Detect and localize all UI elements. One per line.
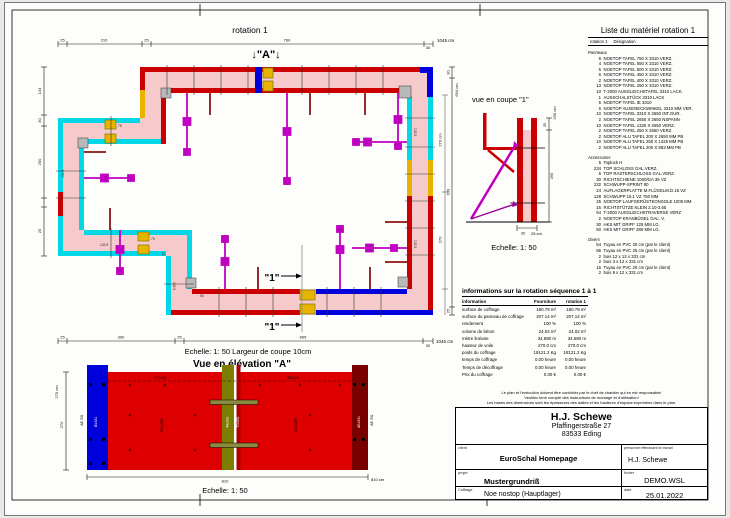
info-row-label: hauteur de voile (462, 342, 524, 349)
svg-text:270 cm: 270 cm (54, 385, 59, 399)
svg-text:12: 12 (161, 252, 165, 256)
rotation-info-table: informations sur la rotation séquence 1 … (462, 288, 588, 378)
svg-text:25: 25 (60, 335, 65, 340)
info-row-value: 100 % (524, 320, 556, 327)
info-table-row: poids du coffrage18121.2 Kg18121.2 Kg (462, 349, 588, 356)
info-col-information: information (462, 299, 524, 304)
svg-text:331x265: 331x265 (294, 418, 298, 431)
svg-text:30: 30 (521, 232, 525, 236)
disclaimer-line: Les bases des dimensions sont les épaiss… (455, 400, 708, 405)
material-groups: Panneaux6NOETOP TAFEL 750 X 3310 VERZ.4N… (588, 50, 708, 276)
info-row-value: 0.00 € (556, 371, 586, 378)
svg-text:810 cm: 810 cm (371, 477, 385, 482)
info-row-label: Temps de décoffrage (462, 364, 524, 371)
client-value: EuroSchal Homepage (456, 454, 621, 463)
info-row-label: poids du coffrage (462, 349, 524, 356)
info-table-row: surface du panneau de coffrage207.14 m²2… (462, 313, 588, 320)
disclaimer-text: Le plan et l'exécution doivent être cont… (455, 390, 708, 405)
svg-text:132.5: 132.5 (61, 170, 65, 178)
file-label: fichier (624, 471, 634, 475)
svg-text:70x331: 70x331 (236, 416, 240, 427)
info-table-row: Prix du coffrage0.00 €0.00 € (462, 371, 588, 378)
material-item-name: bois 9 x 12 x 331 cm (601, 270, 643, 276)
svg-text:25: 25 (60, 38, 65, 43)
company-address-street: Pfaffingerstraße 27 (456, 423, 707, 431)
section-1-marker: "1" (264, 273, 279, 284)
svg-text:200: 200 (37, 158, 42, 165)
material-item: 50HKS MIT GRIFF 280 MM LG. (588, 227, 708, 233)
plan-width-total: 1045 cm (437, 38, 455, 43)
svg-text:331x25: 331x25 (154, 376, 166, 380)
info-row-value: 0.00 heure (556, 364, 586, 371)
info-table-row: volume de béton24.02 m³24.02 m³ (462, 328, 588, 335)
info-row-label: Prix du coffrage (462, 371, 524, 378)
wall-band (58, 67, 433, 315)
info-row-label: surface du panneau de coffrage (462, 313, 524, 320)
info-row-label: temps de coffrage (462, 356, 524, 363)
info-row-label: volume de béton (462, 328, 524, 335)
info-row-value: 0.00 € (524, 371, 556, 378)
svg-text:331x25: 331x25 (287, 376, 299, 380)
info-row-value: 270.0 cm (524, 342, 556, 349)
title-block: H.J. Schewe Pfaffingerstraße 27 83533 Ed… (455, 407, 708, 500)
svg-text:132.5: 132.5 (413, 240, 417, 248)
svg-text:30: 30 (426, 45, 431, 50)
material-item-qty: 50 (588, 227, 601, 233)
svg-text:75: 75 (118, 124, 122, 128)
section-title: vue en coupe "1" (472, 95, 529, 104)
svg-text:50: 50 (200, 294, 204, 298)
svg-text:IEx331: IEx331 (94, 417, 98, 428)
company-header: H.J. Schewe Pfaffingerstraße 27 83533 Ed… (456, 408, 707, 445)
company-name: H.J. Schewe (456, 408, 707, 423)
info-table-title: informations sur la rotation séquence 1 … (462, 288, 588, 297)
svg-text:331x265: 331x265 (160, 418, 164, 431)
info-row-value: 0.00 heure (524, 356, 556, 363)
material-item-qty: 2 (588, 270, 601, 276)
project-label: projet (458, 471, 468, 475)
info-row-value: 180.79 m² (556, 306, 586, 313)
info-row-value: 18121.2 Kg (556, 349, 586, 356)
material-list: Liste du matériel rotation 1 rotation 1 … (588, 26, 708, 276)
svg-text:270 cm: 270 cm (438, 133, 443, 147)
svg-text:75: 75 (151, 237, 155, 241)
info-row-value: 0.00 heure (556, 356, 586, 363)
svg-text:AE 331: AE 331 (80, 414, 84, 426)
svg-text:30: 30 (426, 343, 431, 348)
svg-text:694 cm: 694 cm (454, 83, 459, 97)
title-block-row-client: client EuroSchal Homepage personne effec… (456, 445, 707, 470)
panel-joints (56, 65, 435, 317)
push-pull-props (471, 141, 519, 219)
info-row-value: 270.0 cm (556, 342, 586, 349)
material-col-designation: Désignation (613, 39, 635, 44)
svg-text:290 cm: 290 cm (552, 106, 557, 120)
svg-text:25: 25 (37, 228, 42, 233)
arrow-right-icon (296, 274, 302, 279)
svg-text:25: 25 (144, 38, 149, 43)
svg-text:132.5: 132.5 (100, 243, 108, 247)
formwork-label: Coffrage (458, 488, 473, 492)
info-row-label: surface de coffrage (462, 306, 524, 313)
drawing-sheet: { "colors":{"wall_fill":"#f6caca","red":… (0, 0, 730, 518)
formwork-value: Noe nostop (Hauptlager) (484, 491, 621, 498)
svg-text:AEx331: AEx331 (357, 416, 361, 428)
date-label: date (624, 488, 631, 492)
svg-text:25: 25 (543, 123, 547, 127)
info-row-value: 24.02 m³ (556, 328, 586, 335)
elevation-view: Vue en élévation "A" 331x25 331x25 (54, 359, 385, 495)
info-row-value: 18121.2 Kg (524, 349, 556, 356)
section-view: vue en coupe "1" 290 cm 25 265 (466, 95, 557, 252)
info-table-row: hauteur de voile270.0 cm270.0 cm (462, 342, 588, 349)
svg-text:132.5: 132.5 (413, 128, 417, 136)
material-item-qty: 2 (588, 145, 601, 151)
info-row-value: 24.02 m³ (524, 328, 556, 335)
info-row-value: 34.580 m (556, 335, 586, 342)
section-scale: Echelle: 1: 50 (491, 243, 536, 252)
info-row-value: 100 % (556, 320, 586, 327)
corner-pieces (58, 67, 433, 315)
material-item: 2NOETOP ALU TAFEL 200 X 883 MM PB (588, 145, 708, 151)
info-table-rows: surface de coffrage180.79 m²180.79 m²sur… (462, 306, 588, 378)
svg-text:25: 25 (177, 335, 182, 340)
section-1-marker: "1" (264, 322, 279, 333)
svg-text:270: 270 (59, 421, 64, 428)
info-col-rotation1: rotation 1 (556, 299, 586, 304)
formwork-panels (58, 67, 433, 315)
info-table-row: surface de coffrage180.79 m²180.79 m² (462, 306, 588, 313)
svg-text:265: 265 (549, 172, 554, 179)
walkway-console (483, 113, 518, 172)
svg-text:25 cm: 25 cm (531, 231, 543, 236)
info-row-value: 180.79 m² (524, 306, 556, 313)
elevation-title: Vue en élévation "A" (193, 359, 291, 370)
info-row-value: 0.00 heure (524, 364, 556, 371)
floor-plan: rotation 1 ↓"A"↓ (37, 25, 459, 356)
svg-text:639: 639 (446, 188, 451, 195)
info-row-value: 207.14 m² (524, 313, 556, 320)
info-table-row: rendement100 %100 % (462, 320, 588, 327)
svg-text:210: 210 (101, 38, 108, 43)
svg-text:30: 30 (446, 70, 451, 75)
plan-title: rotation 1 (232, 25, 268, 35)
file-value: DEMO.WSL (622, 476, 707, 485)
info-row-value: 207.14 m² (556, 313, 586, 320)
material-item: 2bois 9 x 12 x 331 cm (588, 270, 708, 276)
info-table-row: Temps de décoffrage0.00 heure0.00 heure (462, 364, 588, 371)
svg-text:760: 760 (284, 38, 291, 43)
material-item-name: HKS MIT GRIFF 280 MM LG. (601, 227, 660, 233)
svg-text:30: 30 (37, 118, 42, 123)
person-label: personne effectuant le travail (624, 446, 673, 450)
plan-width-total: 1045 cm (436, 339, 454, 344)
material-item-name: NOETOP ALU TAFEL 200 X 883 MM PB (601, 145, 681, 151)
svg-text:270: 270 (438, 236, 443, 243)
svg-text:810: 810 (222, 479, 229, 484)
client-label: client (458, 446, 467, 450)
info-row-label: rendement (462, 320, 524, 327)
svg-text:AE 331: AE 331 (370, 414, 374, 426)
arrow-right-icon (296, 323, 302, 328)
panel-labels: 132.5 132.5 132.5 132.5 132.5 75 75 12 5… (61, 124, 417, 298)
svg-text:665: 665 (300, 335, 307, 340)
title-block-row-project: projet Mustergrundriß fichier DEMO.WSL (456, 470, 707, 487)
person-value: H.J. Schewe (628, 457, 707, 464)
info-table-header: information Fourniture rotation 1 (462, 297, 588, 306)
svg-text:132.5: 132.5 (172, 282, 176, 290)
section-a-marker: ↓"A"↓ (251, 49, 280, 61)
info-col-fourniture: Fourniture (524, 299, 556, 304)
project-value: Mustergrundriß (484, 477, 621, 486)
svg-text:48x331: 48x331 (226, 416, 230, 427)
info-table-row: mètre linéaire34.580 m34.580 m (462, 335, 588, 342)
info-row-value: 34.580 m (524, 335, 556, 342)
info-row-label: mètre linéaire (462, 335, 524, 342)
svg-text:134: 134 (37, 87, 42, 94)
date-value: 25.01.2022 (622, 491, 707, 500)
info-table-row: temps de coffrage0.00 heure0.00 heure (462, 356, 588, 363)
material-list-header: rotation 1 Désignation (588, 38, 708, 46)
material-col-qty: rotation 1 (590, 39, 607, 44)
plan-scale-note: Echelle: 1: 50 Largeur de coupe 10cm (185, 347, 312, 356)
title-block-row-formwork: Coffrage Noe nostop (Hauptlager) date 25… (456, 487, 707, 500)
svg-text:300: 300 (118, 335, 125, 340)
elevation-scale: Echelle: 1: 50 (202, 486, 247, 495)
company-address-city: 83533 Eding (456, 431, 707, 439)
svg-text:25: 25 (446, 308, 451, 313)
material-list-title: Liste du matériel rotation 1 (588, 26, 708, 38)
